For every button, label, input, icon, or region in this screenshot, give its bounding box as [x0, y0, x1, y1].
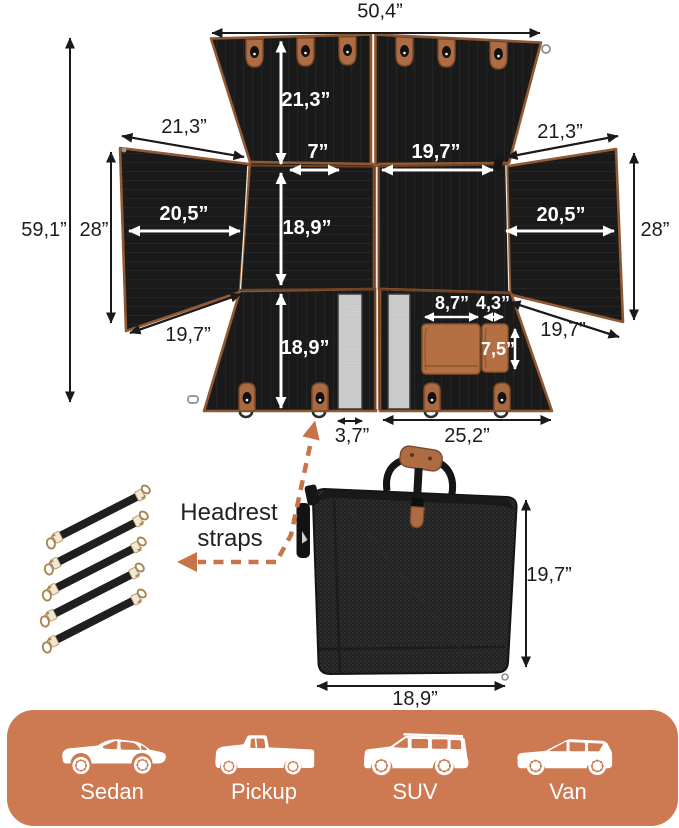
svg-text:20,5”: 20,5”: [160, 203, 209, 225]
svg-text:Van: Van: [549, 779, 587, 804]
svg-text:21,3”: 21,3”: [537, 121, 583, 143]
svg-text:Pickup: Pickup: [231, 779, 297, 804]
svg-text:21,3”: 21,3”: [161, 116, 207, 138]
svg-text:21,3”: 21,3”: [282, 89, 331, 111]
svg-text:8,7”: 8,7”: [435, 293, 469, 313]
svg-text:19,7”: 19,7”: [526, 564, 572, 586]
svg-text:4,3”: 4,3”: [476, 293, 510, 313]
svg-text:50,4”: 50,4”: [357, 1, 403, 23]
svg-text:19,7”: 19,7”: [412, 141, 461, 163]
svg-text:18,9”: 18,9”: [392, 688, 438, 710]
svg-text:59,1”: 59,1”: [21, 219, 67, 241]
svg-text:Sedan: Sedan: [80, 779, 144, 804]
svg-text:7,5”: 7,5”: [481, 339, 515, 359]
svg-text:20,5”: 20,5”: [537, 204, 586, 226]
svg-text:straps: straps: [197, 525, 262, 552]
svg-text:28”: 28”: [641, 219, 670, 241]
svg-text:3,7”: 3,7”: [335, 425, 369, 447]
svg-text:19,7”: 19,7”: [540, 319, 586, 341]
svg-text:19,7”: 19,7”: [165, 324, 211, 346]
svg-text:18,9”: 18,9”: [281, 337, 330, 359]
svg-text:SUV: SUV: [392, 779, 438, 804]
svg-text:Headrest: Headrest: [180, 499, 278, 526]
svg-text:25,2”: 25,2”: [444, 425, 490, 447]
svg-text:28”: 28”: [80, 219, 109, 241]
svg-text:7”: 7”: [307, 141, 328, 163]
svg-text:18,9”: 18,9”: [283, 217, 332, 239]
